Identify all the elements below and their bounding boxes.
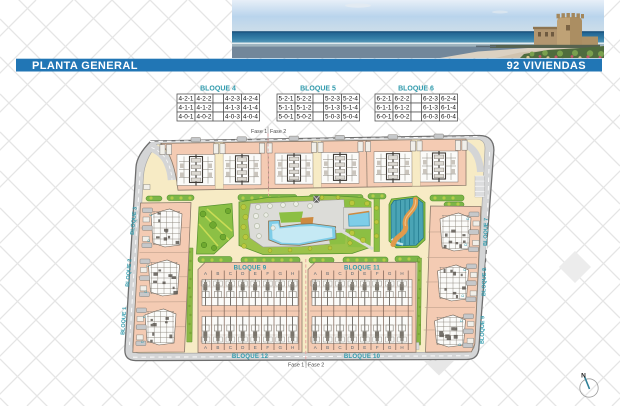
svg-text:F: F bbox=[376, 345, 379, 350]
svg-text:6-1-1: 6-1-1 bbox=[377, 105, 392, 112]
svg-text:5-2-4: 5-2-4 bbox=[343, 96, 358, 103]
svg-text:E: E bbox=[254, 271, 257, 276]
svg-text:5-0-2: 5-0-2 bbox=[297, 114, 312, 121]
svg-text:F: F bbox=[266, 271, 269, 276]
svg-text:5-1-1: 5-1-1 bbox=[279, 105, 294, 112]
svg-text:N: N bbox=[581, 373, 586, 380]
svg-text:B: B bbox=[216, 345, 219, 350]
svg-text:5-2-1: 5-2-1 bbox=[279, 96, 294, 103]
svg-text:D: D bbox=[461, 294, 465, 297]
svg-text:D: D bbox=[146, 264, 150, 267]
svg-text:6-2-3: 6-2-3 bbox=[423, 96, 438, 103]
svg-text:G: G bbox=[388, 345, 392, 350]
svg-text:D: D bbox=[144, 290, 148, 293]
svg-text:D: D bbox=[460, 319, 464, 322]
svg-text:Fase 1: Fase 1 bbox=[251, 129, 267, 135]
svg-text:4-2-2: 4-2-2 bbox=[197, 96, 212, 103]
svg-text:E: E bbox=[254, 345, 257, 350]
svg-text:6-0-1: 6-0-1 bbox=[377, 114, 392, 121]
svg-text:D: D bbox=[463, 268, 467, 271]
svg-text:4-2-4: 4-2-4 bbox=[243, 96, 258, 103]
svg-text:4-1-3: 4-1-3 bbox=[225, 105, 240, 112]
svg-text:Fase 2: Fase 2 bbox=[270, 129, 286, 135]
svg-text:4-1-2: 4-1-2 bbox=[197, 105, 212, 112]
svg-text:G: G bbox=[388, 271, 392, 276]
svg-text:5-1-3: 5-1-3 bbox=[325, 105, 340, 112]
svg-text:B: B bbox=[216, 271, 219, 276]
svg-text:5-1-2: 5-1-2 bbox=[297, 105, 312, 112]
svg-text:5-0-3: 5-0-3 bbox=[325, 114, 340, 121]
svg-text:A: A bbox=[204, 345, 207, 350]
svg-text:6-0-2: 6-0-2 bbox=[395, 114, 410, 121]
svg-text:BLOQUE 11: BLOQUE 11 bbox=[344, 264, 380, 271]
svg-text:G: G bbox=[278, 345, 282, 350]
svg-text:H: H bbox=[400, 271, 403, 276]
svg-text:BLOQUE 5: BLOQUE 5 bbox=[300, 86, 336, 93]
svg-text:BLOQUE 8: BLOQUE 8 bbox=[481, 268, 488, 296]
svg-text:D: D bbox=[147, 239, 151, 242]
svg-text:D: D bbox=[149, 213, 153, 216]
svg-text:5-0-4: 5-0-4 bbox=[343, 114, 358, 121]
svg-text:A: A bbox=[314, 345, 317, 350]
svg-text:5-2-3: 5-2-3 bbox=[325, 96, 340, 103]
svg-text:A: A bbox=[204, 271, 207, 276]
svg-text:D: D bbox=[143, 315, 147, 318]
svg-text:D: D bbox=[466, 217, 470, 220]
svg-text:4-1-4: 4-1-4 bbox=[243, 105, 258, 112]
svg-text:92 VIVIENDAS: 92 VIVIENDAS bbox=[507, 60, 586, 72]
svg-text:H: H bbox=[291, 271, 294, 276]
svg-text:D: D bbox=[458, 343, 462, 346]
svg-text:4-2-3: 4-2-3 bbox=[225, 96, 240, 103]
svg-text:G: G bbox=[278, 271, 282, 276]
svg-text:Fase 2: Fase 2 bbox=[308, 363, 324, 369]
svg-text:6-2-2: 6-2-2 bbox=[395, 96, 410, 103]
svg-text:6-2-4: 6-2-4 bbox=[441, 96, 456, 103]
svg-text:5-1-4: 5-1-4 bbox=[343, 105, 358, 112]
svg-text:4-1-1: 4-1-1 bbox=[179, 105, 194, 112]
svg-text:BLOQUE 12: BLOQUE 12 bbox=[232, 353, 269, 360]
svg-text:6-0-4: 6-0-4 bbox=[441, 114, 456, 121]
svg-text:BLOQUE 4: BLOQUE 4 bbox=[200, 86, 236, 93]
svg-text:4-0-4: 4-0-4 bbox=[243, 114, 258, 121]
svg-text:4-0-1: 4-0-1 bbox=[179, 114, 194, 121]
svg-text:5-0-1: 5-0-1 bbox=[279, 114, 294, 121]
svg-text:6-2-1: 6-2-1 bbox=[377, 96, 392, 103]
svg-text:H: H bbox=[400, 345, 403, 350]
svg-text:H: H bbox=[291, 345, 294, 350]
svg-text:PLANTA GENERAL: PLANTA GENERAL bbox=[32, 60, 138, 72]
svg-text:B: B bbox=[326, 271, 329, 276]
svg-text:A: A bbox=[314, 271, 317, 276]
svg-text:4-0-3: 4-0-3 bbox=[225, 114, 240, 121]
svg-text:F: F bbox=[376, 271, 379, 276]
svg-text:BLOQUE 7: BLOQUE 7 bbox=[483, 218, 490, 246]
svg-text:BLOQUE 10: BLOQUE 10 bbox=[344, 353, 381, 360]
svg-text:E: E bbox=[363, 345, 366, 350]
svg-text:Fase 1: Fase 1 bbox=[288, 363, 304, 369]
svg-text:6-1-3: 6-1-3 bbox=[423, 105, 438, 112]
svg-text:BLOQUE 9: BLOQUE 9 bbox=[234, 264, 267, 271]
svg-text:D: D bbox=[464, 243, 468, 246]
svg-text:4-0-2: 4-0-2 bbox=[197, 114, 212, 121]
svg-text:6-1-2: 6-1-2 bbox=[395, 105, 410, 112]
svg-text:B: B bbox=[326, 345, 329, 350]
svg-text:BLOQUE 6: BLOQUE 6 bbox=[398, 86, 434, 93]
svg-text:6-0-3: 6-0-3 bbox=[423, 114, 438, 121]
svg-text:E: E bbox=[363, 271, 366, 276]
svg-text:F: F bbox=[266, 345, 269, 350]
svg-text:6-1-4: 6-1-4 bbox=[441, 105, 456, 112]
svg-text:5-2-2: 5-2-2 bbox=[297, 96, 312, 103]
svg-text:D: D bbox=[141, 340, 145, 343]
svg-text:BLOQUE 9: BLOQUE 9 bbox=[480, 316, 487, 344]
svg-text:4-2-1: 4-2-1 bbox=[179, 96, 194, 103]
